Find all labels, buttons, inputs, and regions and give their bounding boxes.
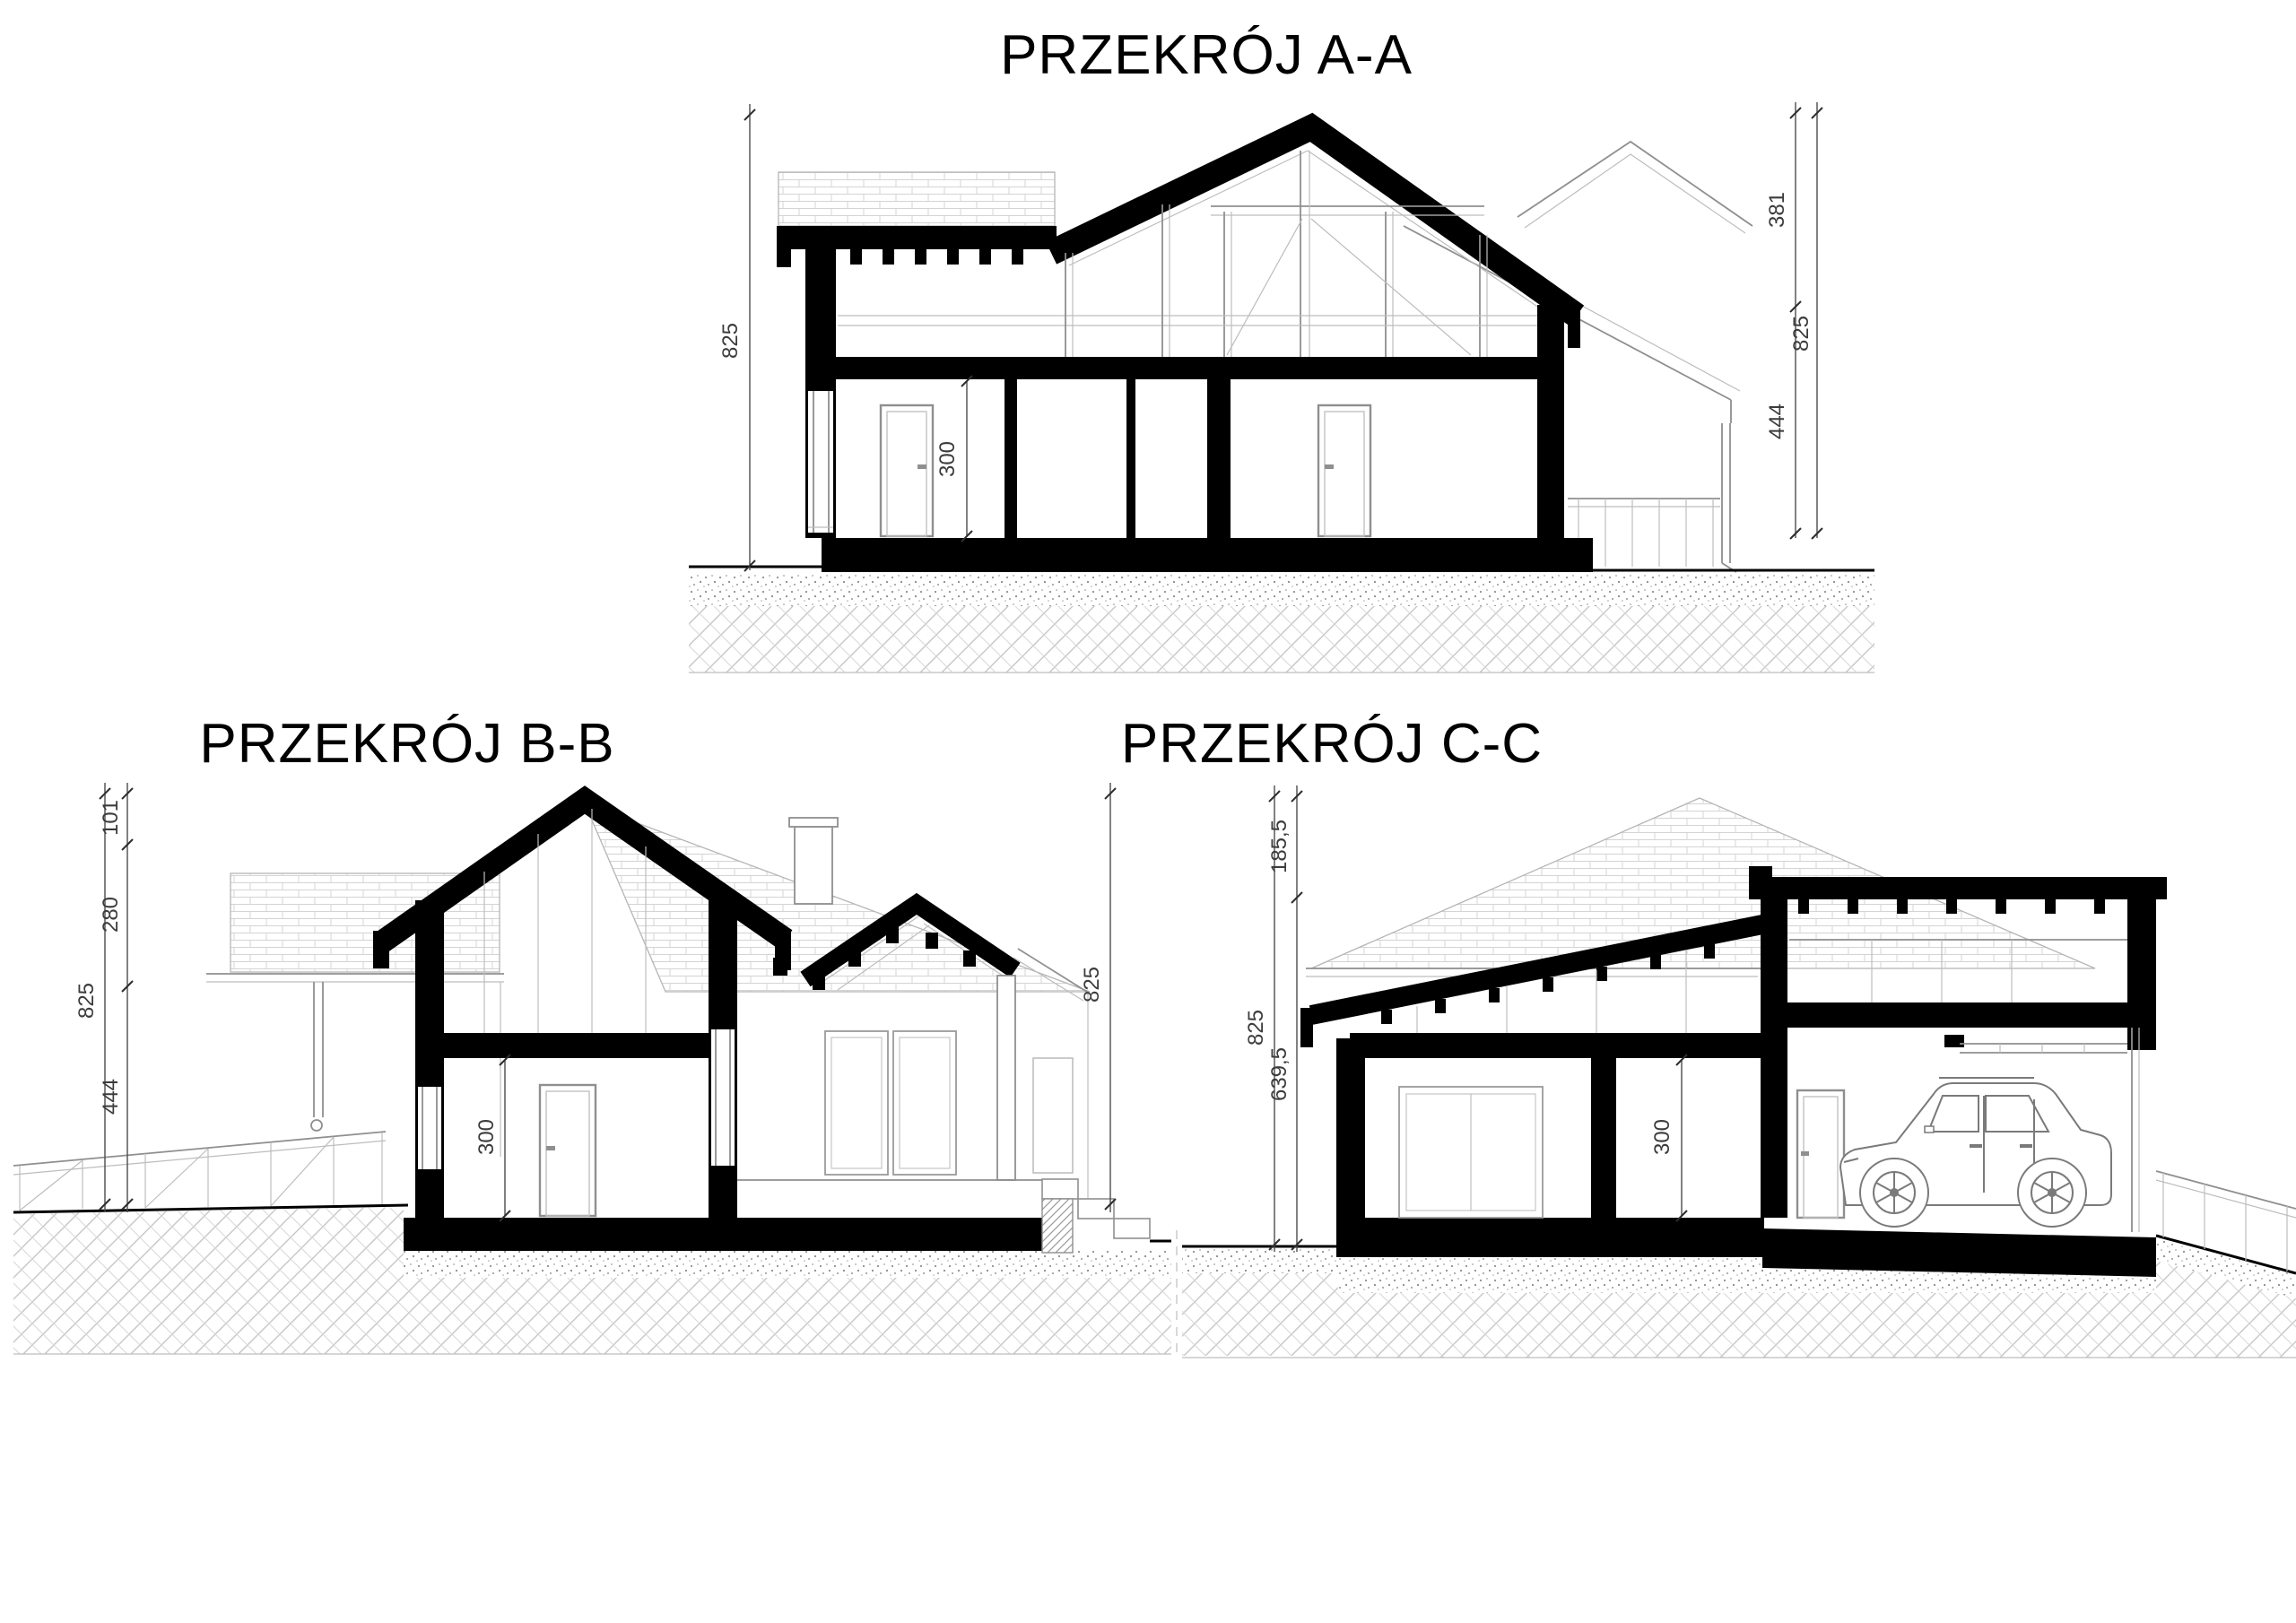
- dim-label: 101: [99, 800, 123, 836]
- dimension-right: 825: [1080, 783, 1116, 1212]
- dim-label: 300: [935, 441, 960, 477]
- floor-slab: [404, 1218, 1045, 1251]
- boundary-fence: [13, 1132, 386, 1211]
- dim-label: 825: [1080, 967, 1104, 1002]
- ceiling-slab: [444, 1033, 709, 1058]
- dim-label: 825: [1244, 1010, 1268, 1046]
- dim-label: 280: [99, 897, 123, 933]
- dimension-left: 825: [718, 104, 755, 571]
- dimension-room-height: 300: [1650, 1055, 1687, 1221]
- section-b-left-outbuilding: [206, 873, 504, 1157]
- dim-label: 825: [74, 983, 99, 1019]
- dim-label: 300: [474, 1119, 499, 1155]
- floor-slab: [1336, 1218, 1764, 1257]
- section-a-drawing: 300 825 381 444 825: [689, 102, 1874, 673]
- dim-label: 825: [1789, 316, 1813, 352]
- floor-slab: [822, 538, 1593, 572]
- dim-label: 381: [1765, 192, 1789, 228]
- dimension-room-height: 300: [935, 376, 972, 542]
- interior-door: [1318, 405, 1370, 536]
- car-wheel: [2018, 1159, 2086, 1227]
- interior-window: [1399, 1087, 1543, 1218]
- garage-entry-door: [1797, 1090, 1844, 1218]
- dimension-left: 185,5 639,5 825: [1244, 785, 1302, 1252]
- downspout: [1722, 423, 1736, 572]
- dimension-room-height: 300: [474, 1055, 510, 1221]
- dimension-left: 101 280 444 825: [74, 783, 133, 1212]
- dim-label: 639,5: [1267, 1047, 1291, 1101]
- dim-label: 444: [1765, 404, 1789, 439]
- dim-label: 444: [99, 1079, 123, 1115]
- dim-label: 185,5: [1267, 820, 1291, 873]
- background-chimney: [789, 818, 838, 904]
- downspout: [311, 982, 323, 1131]
- left-eave-fascia: [373, 931, 389, 968]
- interior-door: [540, 1085, 596, 1216]
- ceiling-slab: [836, 357, 1564, 379]
- dim-label: 300: [1650, 1119, 1674, 1155]
- terrace-steps: [1042, 1179, 1150, 1253]
- dimension-right: 381 444 825: [1765, 102, 1822, 539]
- section-a-ground: [689, 567, 1874, 673]
- left-eave-fascia: [1300, 1008, 1313, 1047]
- car-wheel: [1860, 1159, 1928, 1227]
- section-c-drawing: 300 185,5 639,5 825: [1182, 785, 2296, 1358]
- section-b-drawing: 300 101 280 444 825: [13, 783, 1177, 1354]
- sections-canvas: 300 825 381 444 825: [0, 0, 2296, 1623]
- ceiling-slab: [1350, 1033, 1764, 1058]
- porch-glazing: [737, 976, 1073, 1180]
- ground-break-line: [1171, 1230, 1182, 1358]
- upper-right-wall: [1537, 305, 1564, 360]
- interior-door: [881, 405, 933, 536]
- car: [1840, 1078, 2111, 1227]
- dim-label: 825: [718, 323, 743, 359]
- right-eave-fascia: [1568, 308, 1580, 348]
- drawing-sheet: PRZEKRÓJ A-A PRZEKRÓJ B-B PRZEKRÓJ C-C: [0, 0, 2296, 1623]
